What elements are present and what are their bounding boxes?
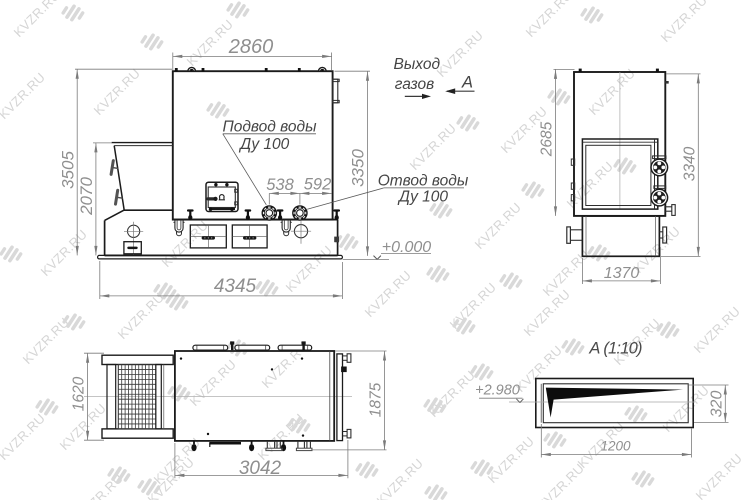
svg-text:320: 320 [708,391,725,418]
svg-text:4345: 4345 [214,276,257,297]
svg-text:2070: 2070 [77,177,96,216]
svg-text:592: 592 [304,176,332,194]
svg-text:1200: 1200 [600,439,631,454]
svg-text:+2.980: +2.980 [475,383,520,399]
svg-text:А (1:10): А (1:10) [588,340,642,358]
svg-text:газов: газов [395,76,435,93]
svg-text:2860: 2860 [228,36,274,58]
svg-text:3350: 3350 [349,149,368,187]
svg-text:3505: 3505 [59,151,78,189]
svg-text:Ду 100: Ду 100 [397,189,448,206]
svg-text:Подвод воды: Подвод воды [222,119,317,136]
svg-text:Отвод воды: Отвод воды [378,172,469,189]
svg-text:А: А [461,74,473,92]
svg-text:1875: 1875 [368,382,385,417]
svg-text:Выход: Выход [394,56,441,73]
svg-text:1620: 1620 [71,376,88,411]
svg-text:538: 538 [266,176,294,194]
svg-text:2685: 2685 [539,121,556,157]
svg-text:3042: 3042 [239,458,282,479]
svg-text:Ду 100: Ду 100 [238,136,289,153]
svg-text:1370: 1370 [604,265,640,282]
svg-text:3340: 3340 [681,146,698,181]
